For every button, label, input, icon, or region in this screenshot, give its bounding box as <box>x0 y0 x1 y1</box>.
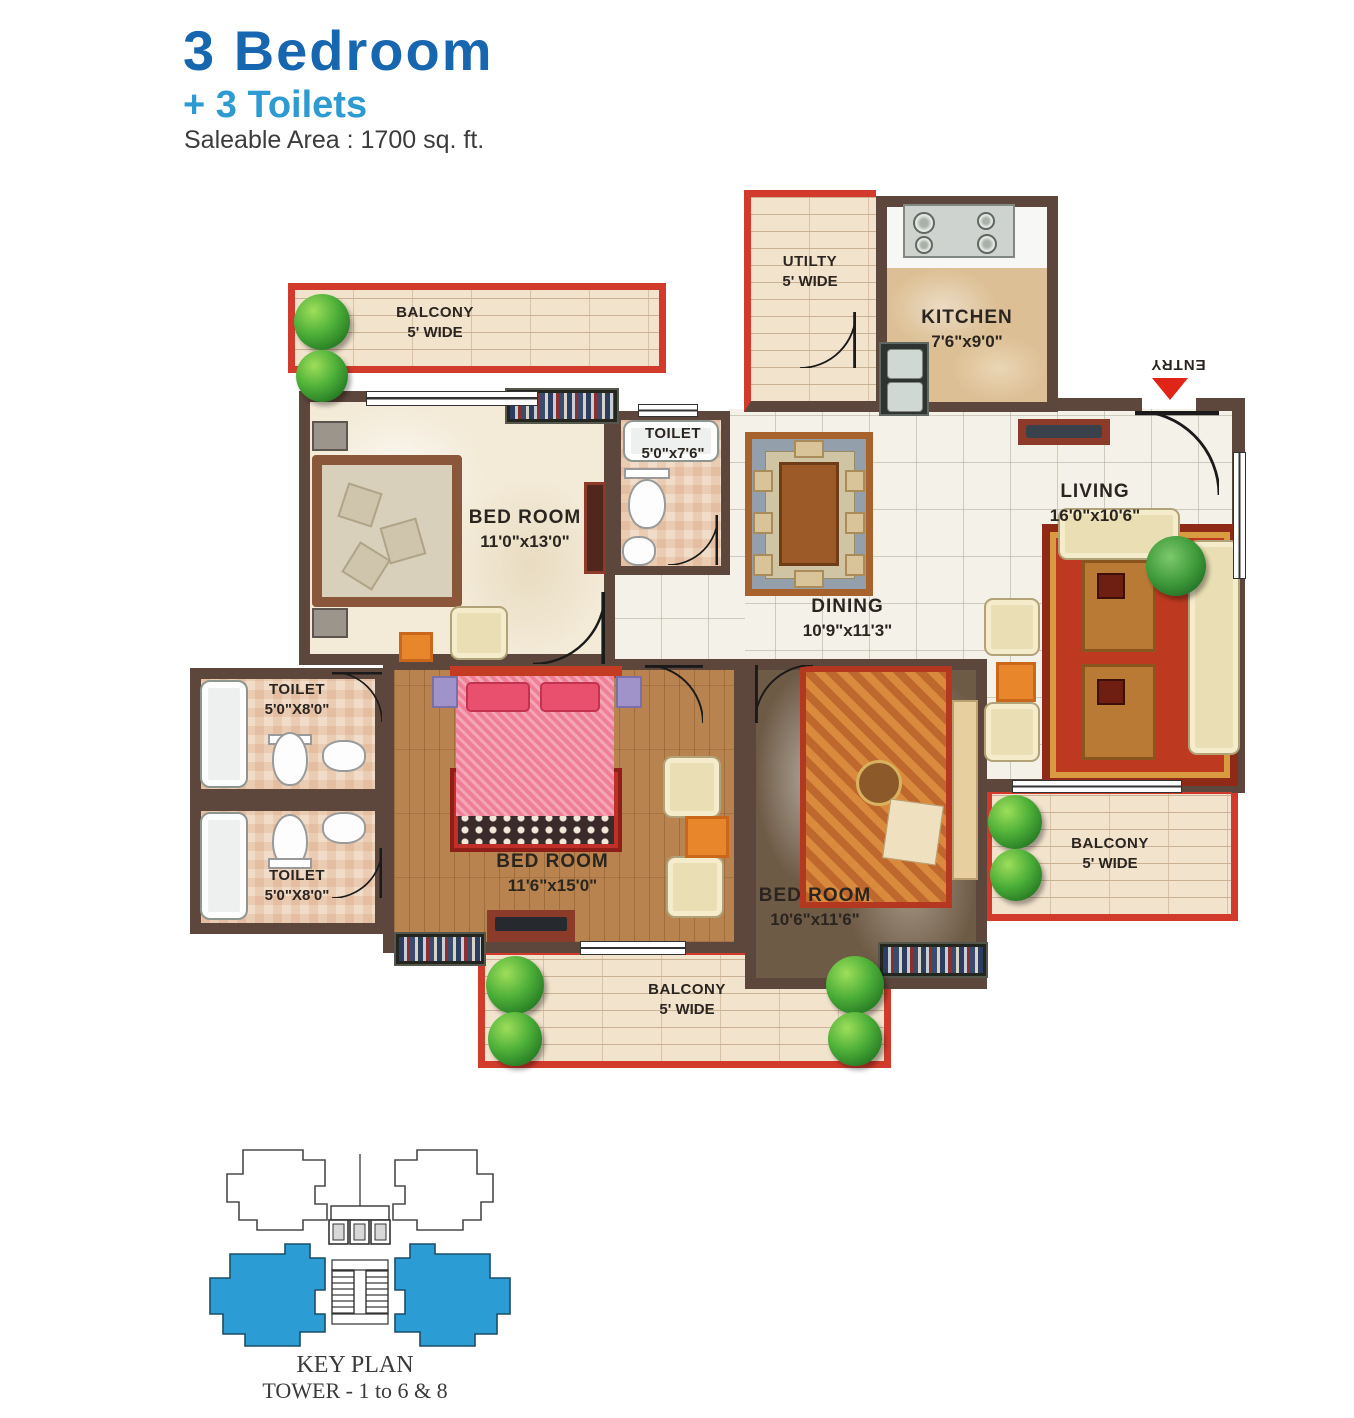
bedroom-3-bed <box>800 666 952 908</box>
living-balcony-window <box>1012 780 1182 793</box>
keyplan-subtitle: TOWER - 1 to 6 & 8 <box>205 1378 505 1404</box>
living-window <box>1233 452 1246 579</box>
toilet-2-wc <box>272 732 308 786</box>
utility-door-arc <box>800 312 856 368</box>
bedroom-3-label: BED ROOM 10'6"x11'6" <box>740 884 890 931</box>
dining-chair <box>845 470 865 492</box>
key-plan-diagram <box>195 1142 525 1354</box>
bedroom-1-chair <box>450 606 508 660</box>
shrub-icon <box>486 956 544 1014</box>
shrub-icon <box>990 849 1042 901</box>
kitchen-label: KITCHEN 7'6"x9'0" <box>890 306 1044 353</box>
toilet-1-wc <box>628 479 666 529</box>
bedroom-2-door-arc <box>645 665 703 723</box>
living-console <box>1018 419 1110 445</box>
shrub-icon <box>296 350 348 402</box>
kitchen-sink <box>879 342 929 416</box>
bedroom-2-wardrobe <box>394 932 486 966</box>
floorplan-page: 3 Bedroom + 3 Toilets Saleable Area : 17… <box>0 0 1354 1418</box>
bedroom-2-window <box>580 941 686 955</box>
bedroom-2-label: BED ROOM 11'6"x15'0" <box>450 850 655 897</box>
bedside-cushion <box>616 676 642 708</box>
dining-chair <box>794 570 824 588</box>
entry-arrow-icon <box>1152 378 1188 400</box>
entry-door-arc <box>1135 411 1219 495</box>
toilet-1-label: TOILET 5'0"x7'6" <box>617 424 729 463</box>
bed-pillow <box>540 682 600 712</box>
balcony-bottom-label: BALCONY 5' WIDE <box>592 980 782 1019</box>
bedroom-2-chair <box>663 756 721 818</box>
toilet-3-door-arc <box>332 848 382 898</box>
page-title: 3 Bedroom <box>183 18 494 83</box>
living-plant-icon <box>1146 536 1206 596</box>
keyplan-title: KEY PLAN <box>205 1352 505 1379</box>
toilet-3-washbasin <box>322 812 366 844</box>
shrub-icon <box>488 1012 542 1066</box>
dining-label: DINING 10'9"x11'3" <box>765 595 930 642</box>
shrub-icon <box>988 795 1042 849</box>
page-subtitle: + 3 Toilets <box>183 84 367 127</box>
utility-label: UTILTY 5' WIDE <box>748 252 872 291</box>
balcony-top-left-label: BALCONY 5' WIDE <box>345 303 525 342</box>
bedroom-2-tv-unit <box>487 910 575 942</box>
keyplan-wing-highlighted <box>395 1244 510 1346</box>
corridor-floor <box>615 575 745 665</box>
bedroom-1-label: BED ROOM 11'0"x13'0" <box>430 506 620 553</box>
bedroom-1-table <box>399 632 433 662</box>
bed-pillow <box>466 682 530 712</box>
wall-segment <box>1050 398 1142 411</box>
bedroom-2-chair <box>666 856 724 918</box>
keyplan-wing-outline <box>393 1150 493 1230</box>
dining-chair <box>845 554 865 576</box>
living-side-table <box>996 662 1036 702</box>
bedroom-1-door-arc <box>533 592 605 664</box>
shrub-icon <box>826 956 884 1014</box>
living-armchair <box>984 598 1040 656</box>
keyplan-wing-outline <box>227 1150 327 1230</box>
balcony-right-label: BALCONY 5' WIDE <box>1035 834 1185 873</box>
bedroom-1-window <box>366 391 538 406</box>
toilet-1-cistern <box>624 468 670 479</box>
keyplan-wing-highlighted <box>210 1244 325 1346</box>
toilet-1-washbasin <box>622 536 656 566</box>
toilet-2-washbasin <box>322 740 366 772</box>
bedroom-2-table <box>685 816 729 858</box>
dining-chair <box>753 554 773 576</box>
bedroom-3-wardrobe <box>878 942 988 978</box>
bedroom-3-bench <box>952 700 978 880</box>
dining-chair <box>794 440 824 458</box>
utility <box>744 190 876 412</box>
living-armchair <box>984 702 1040 762</box>
shrub-icon <box>294 294 350 350</box>
living-coffee-table <box>1082 664 1156 760</box>
dining-chair <box>753 512 773 534</box>
living-coffee-table <box>1082 560 1156 652</box>
toilet-2-door-arc <box>332 672 382 722</box>
saleable-area-text: Saleable Area : 1700 sq. ft. <box>184 126 484 155</box>
toilet-1-door-arc <box>668 515 718 565</box>
toilet-1-window <box>638 404 698 417</box>
bedroom-1-side-table <box>312 421 348 451</box>
dining-chair <box>753 470 773 492</box>
shrub-icon <box>828 1012 882 1066</box>
dining-chair <box>845 512 865 534</box>
dining-table <box>779 462 839 566</box>
bedroom-3-door-arc <box>755 665 813 723</box>
bedroom-1-side-table <box>312 608 348 638</box>
kitchen-hob <box>903 204 1015 258</box>
bedside-cushion <box>432 676 458 708</box>
entry-label: ENTRY <box>1138 356 1218 373</box>
